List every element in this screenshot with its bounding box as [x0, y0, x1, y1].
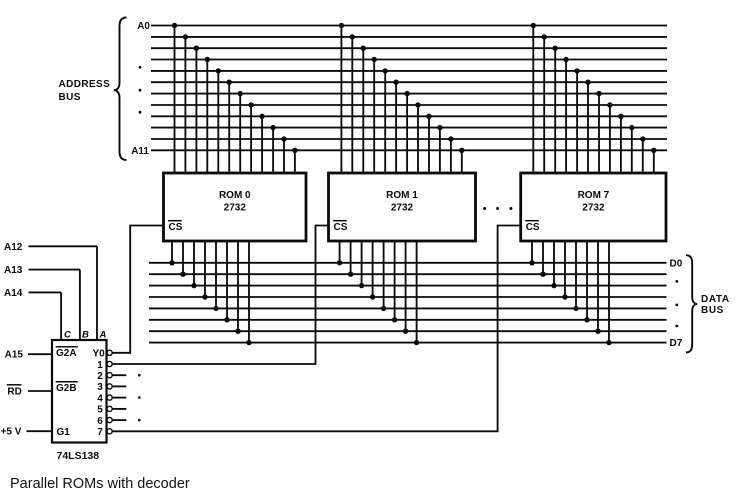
svg-text:D7: D7: [670, 338, 683, 349]
svg-text:A11: A11: [131, 146, 149, 157]
svg-text:A13: A13: [4, 265, 23, 276]
svg-text:Y0: Y0: [92, 348, 105, 359]
svg-text:A15: A15: [5, 350, 24, 361]
svg-text:74LS138: 74LS138: [57, 450, 100, 462]
svg-text:2732: 2732: [582, 203, 605, 214]
svg-text:A: A: [99, 329, 107, 340]
svg-text:A14: A14: [4, 288, 23, 299]
svg-text:A0: A0: [137, 21, 150, 32]
svg-text:ADDRESS: ADDRESS: [59, 79, 111, 90]
svg-text:G2A: G2A: [56, 348, 77, 359]
svg-text:Parallel ROMs with decoder: Parallel ROMs with decoder: [10, 476, 190, 492]
svg-text:B: B: [82, 329, 89, 340]
svg-text:G2B: G2B: [56, 383, 77, 394]
svg-text:ROM 7: ROM 7: [578, 190, 610, 201]
svg-text:2732: 2732: [224, 203, 247, 214]
svg-text:2732: 2732: [391, 203, 414, 214]
svg-text:7: 7: [97, 427, 103, 438]
svg-text:5: 5: [97, 405, 103, 416]
svg-text:3: 3: [97, 382, 103, 393]
svg-text:BUS: BUS: [59, 92, 81, 103]
svg-text:4: 4: [97, 393, 103, 404]
svg-text:DATA: DATA: [701, 294, 730, 305]
svg-text:+5 V: +5 V: [1, 427, 22, 438]
svg-text:ROM 1: ROM 1: [386, 190, 418, 201]
svg-text:CS: CS: [526, 222, 540, 233]
svg-text:C: C: [64, 329, 71, 340]
svg-text:6: 6: [97, 416, 103, 427]
svg-text:2: 2: [97, 371, 103, 382]
svg-text:CS: CS: [334, 222, 348, 233]
svg-text:BUS: BUS: [701, 305, 724, 316]
svg-text:ROM 0: ROM 0: [219, 190, 251, 201]
svg-text:D0: D0: [670, 258, 683, 269]
svg-text:A12: A12: [4, 242, 23, 253]
svg-text:G1: G1: [57, 427, 71, 438]
svg-text:1: 1: [97, 360, 103, 371]
svg-text:RD: RD: [7, 386, 21, 397]
svg-text:CS: CS: [169, 222, 183, 233]
